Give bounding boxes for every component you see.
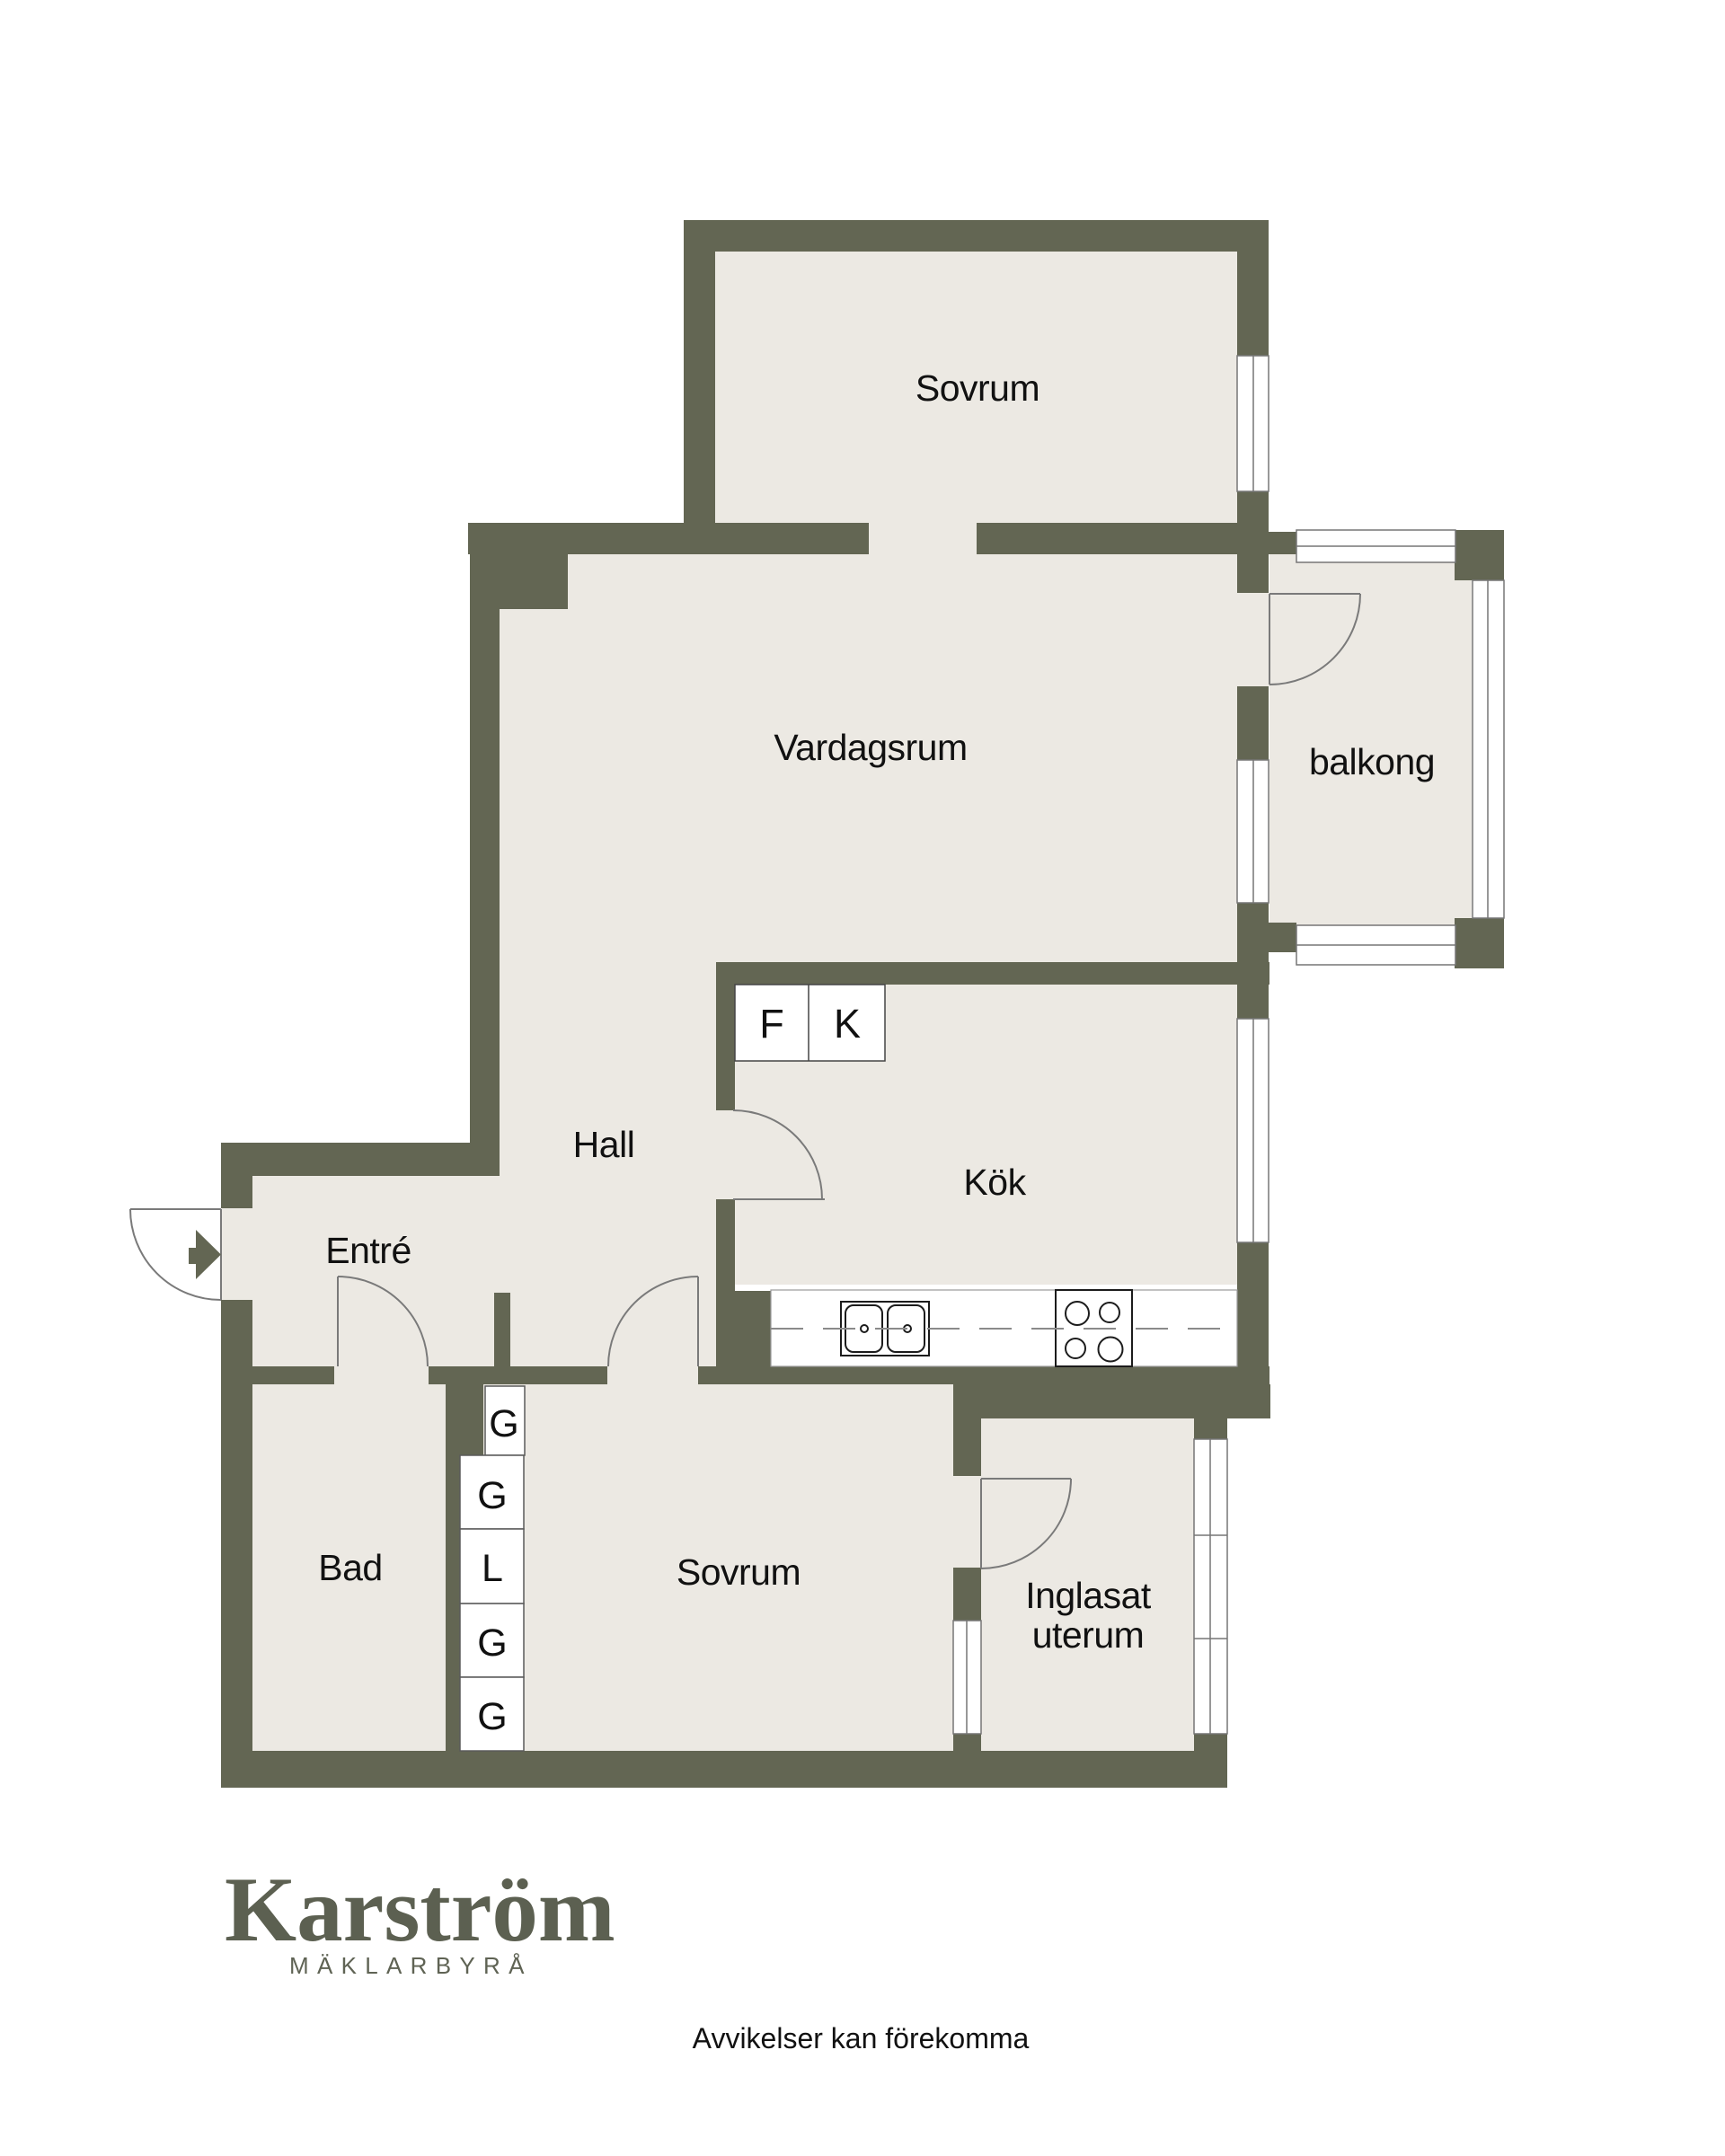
svg-text:Avvikelser kan förekomma: Avvikelser kan förekomma	[693, 2022, 1030, 2054]
svg-text:Sovrum: Sovrum	[677, 1551, 801, 1593]
svg-text:Bad: Bad	[318, 1547, 382, 1588]
svg-text:G: G	[477, 1621, 507, 1665]
svg-text:G: G	[477, 1695, 507, 1738]
svg-text:F: F	[759, 1001, 784, 1047]
svg-text:balkong: balkong	[1309, 741, 1435, 782]
svg-text:Entré: Entré	[325, 1230, 411, 1271]
svg-text:Kök: Kök	[963, 1162, 1026, 1203]
svg-text:Sovrum: Sovrum	[916, 367, 1039, 409]
svg-text:G: G	[477, 1474, 507, 1517]
svg-text:MÄKLARBYRÅ: MÄKLARBYRÅ	[289, 1952, 533, 1979]
svg-text:uterum: uterum	[1032, 1614, 1145, 1656]
svg-text:Vardagsrum: Vardagsrum	[774, 727, 967, 768]
svg-text:L: L	[482, 1547, 503, 1590]
svg-text:Hall: Hall	[573, 1124, 635, 1165]
svg-text:Karström: Karström	[225, 1859, 615, 1961]
svg-text:K: K	[834, 1001, 861, 1047]
svg-text:Inglasat: Inglasat	[1025, 1575, 1152, 1616]
svg-text:G: G	[489, 1402, 518, 1445]
